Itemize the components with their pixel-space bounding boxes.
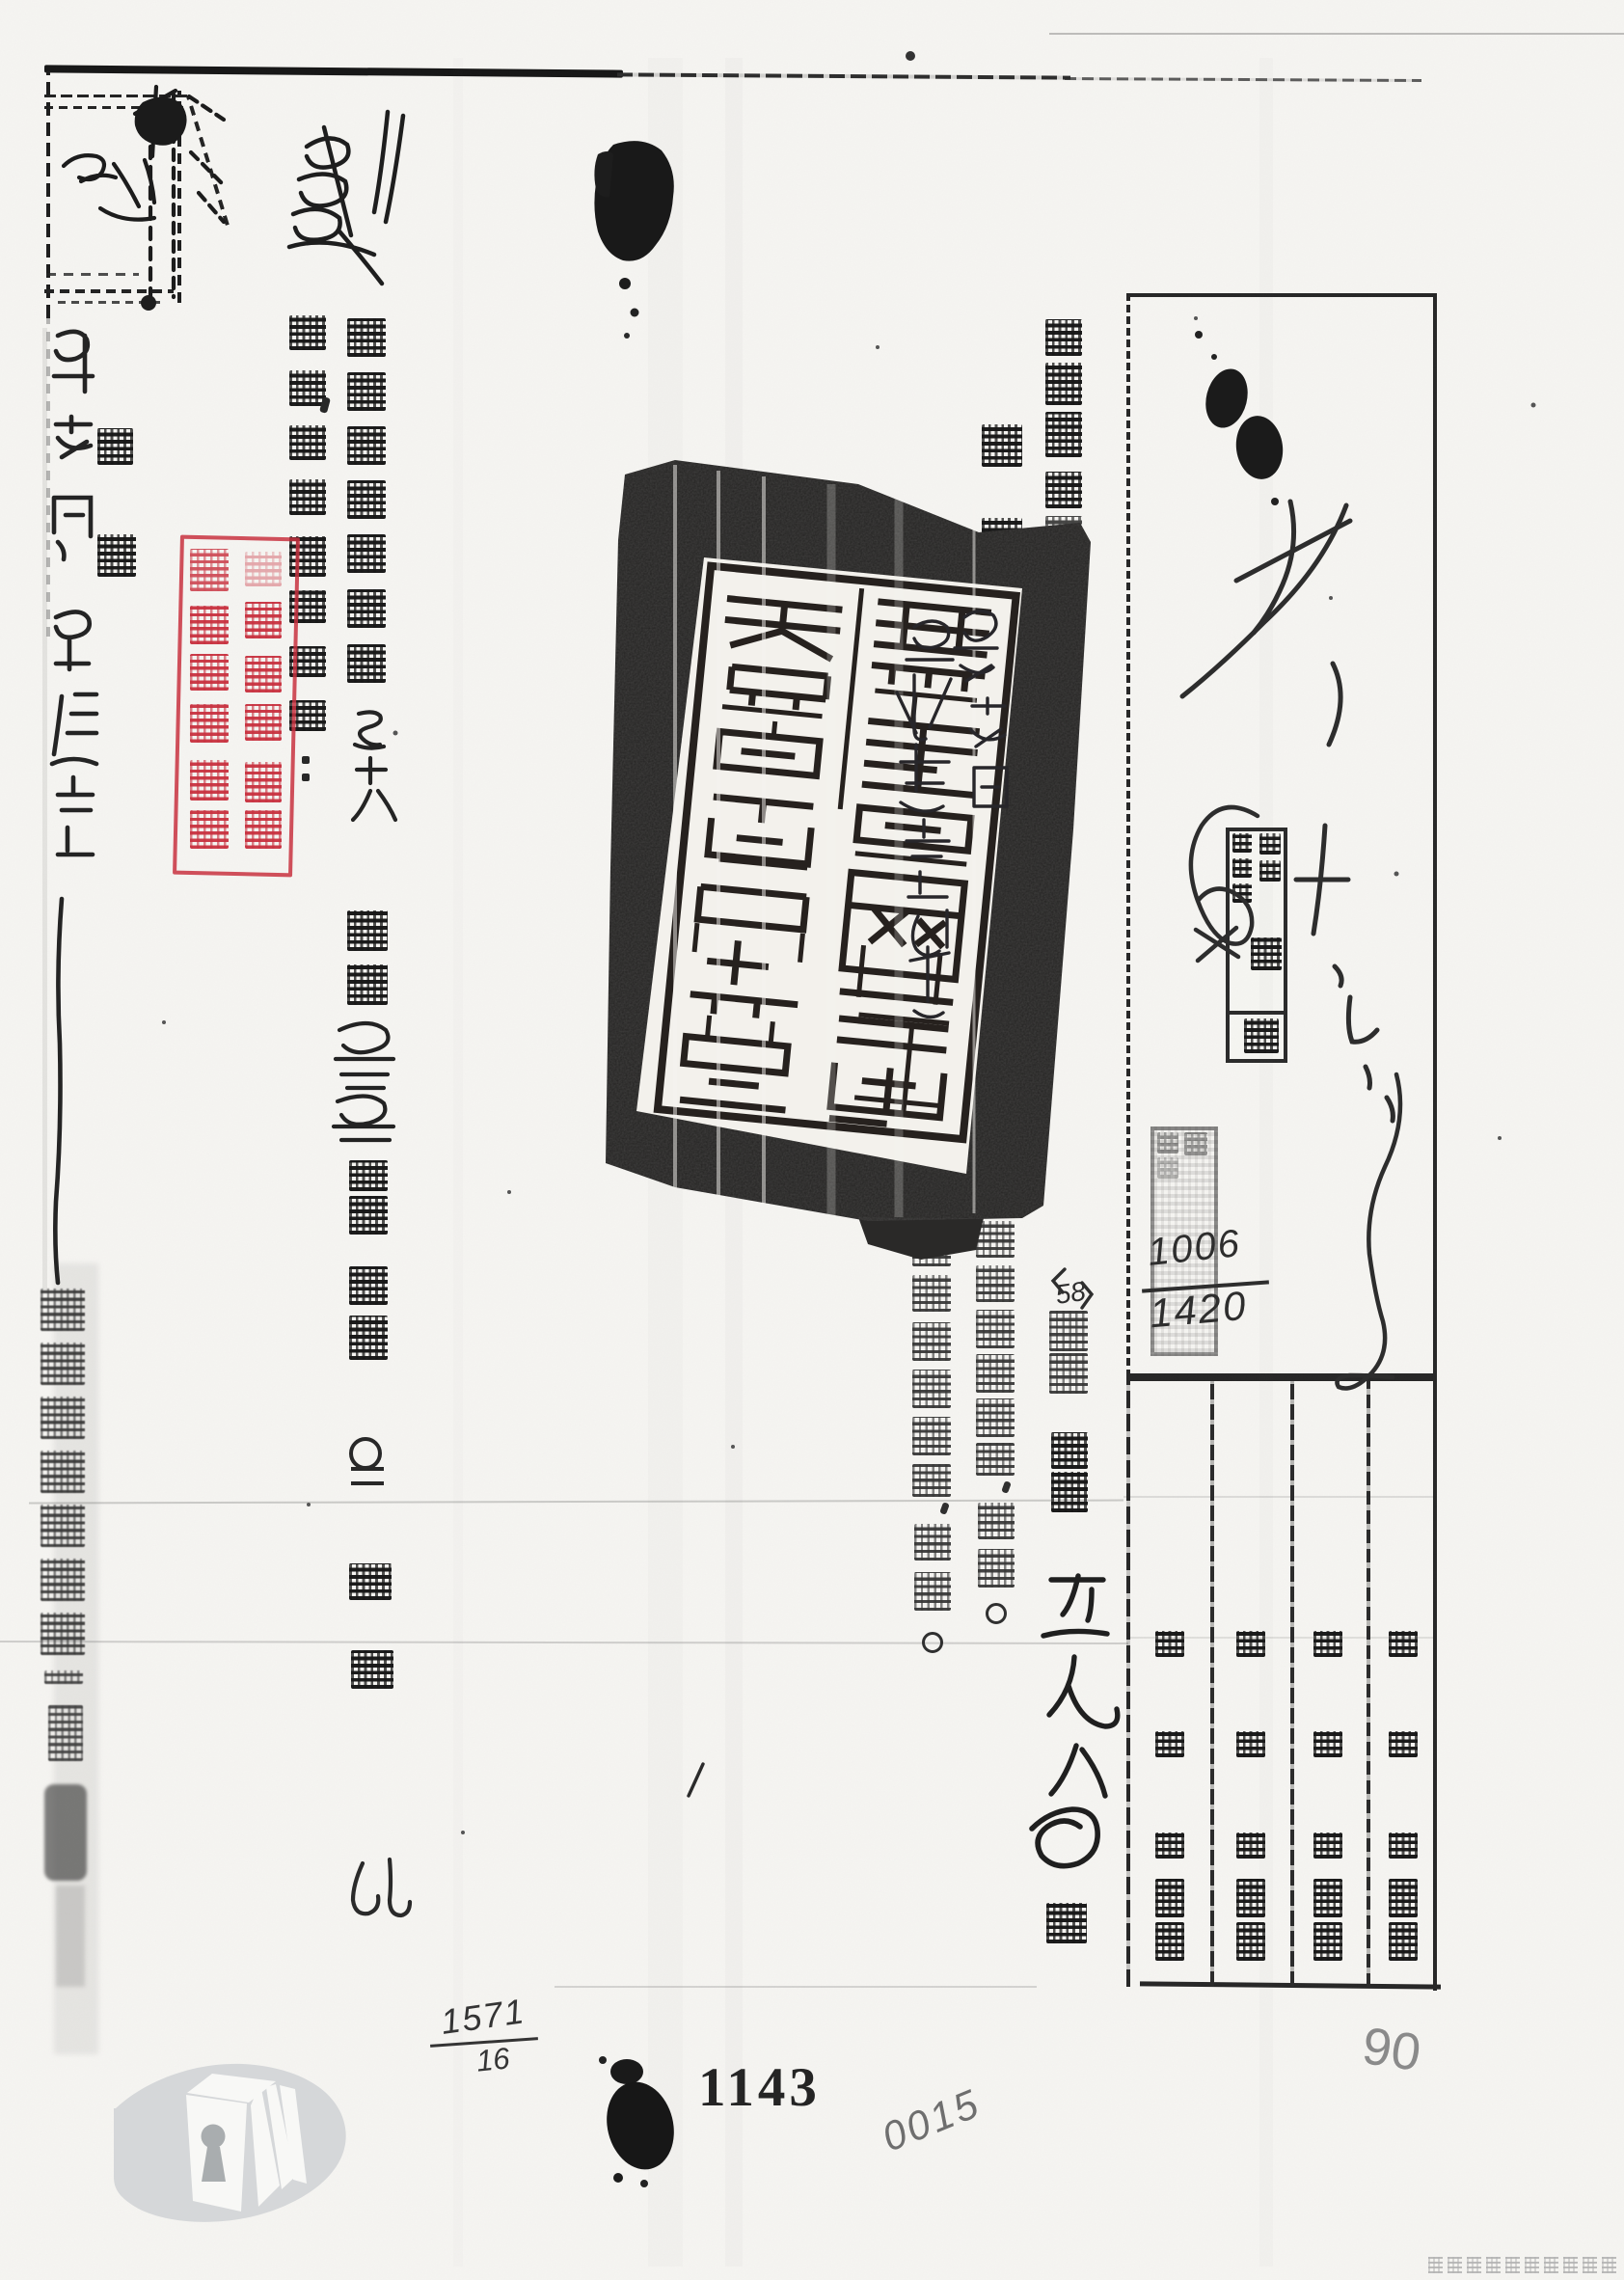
svg-text:58: 58	[1054, 1276, 1089, 1310]
